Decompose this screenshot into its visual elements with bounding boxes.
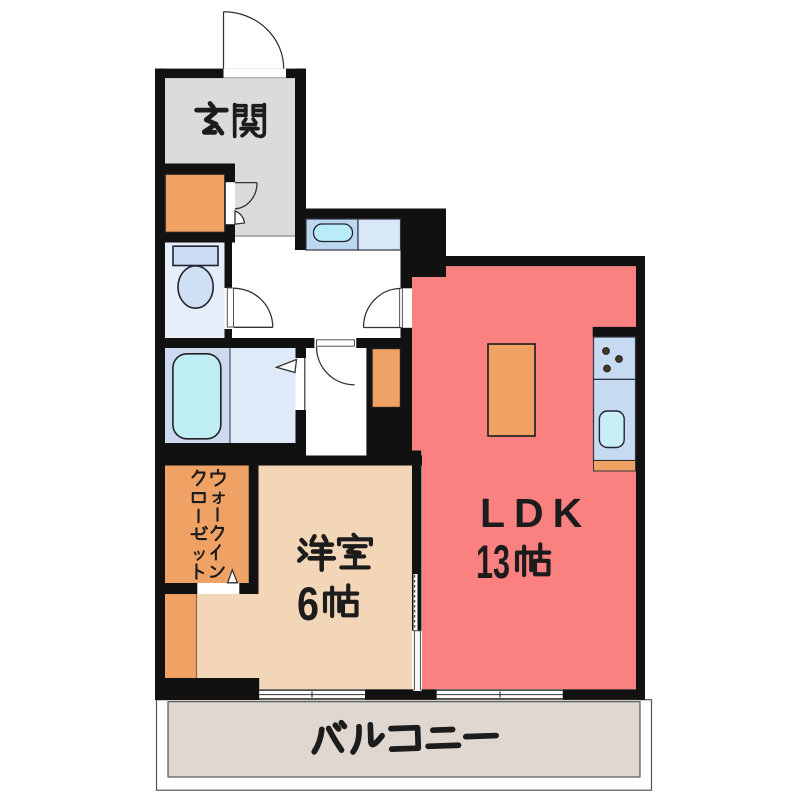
svg-text:6: 6: [297, 577, 319, 630]
svg-text:13: 13: [476, 535, 510, 588]
svg-text:LDK: LDK: [480, 490, 591, 536]
